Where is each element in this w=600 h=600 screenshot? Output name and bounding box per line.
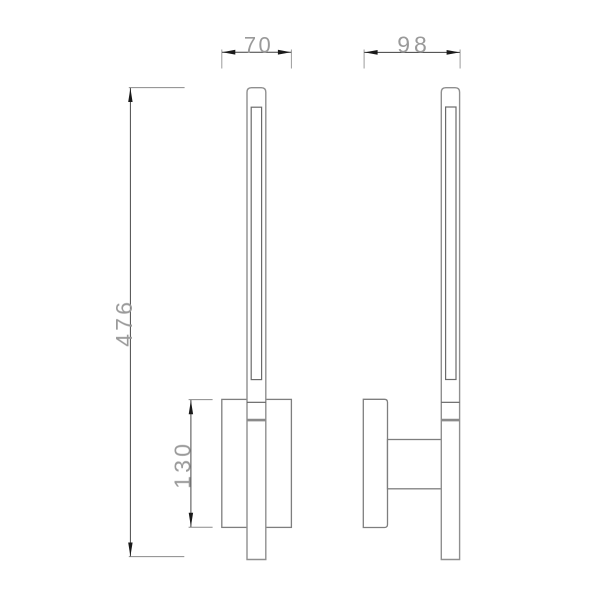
svg-text:70: 70 [244,32,273,57]
svg-text:130: 130 [170,441,196,489]
svg-text:98: 98 [397,32,431,58]
svg-text:476: 476 [111,299,137,347]
